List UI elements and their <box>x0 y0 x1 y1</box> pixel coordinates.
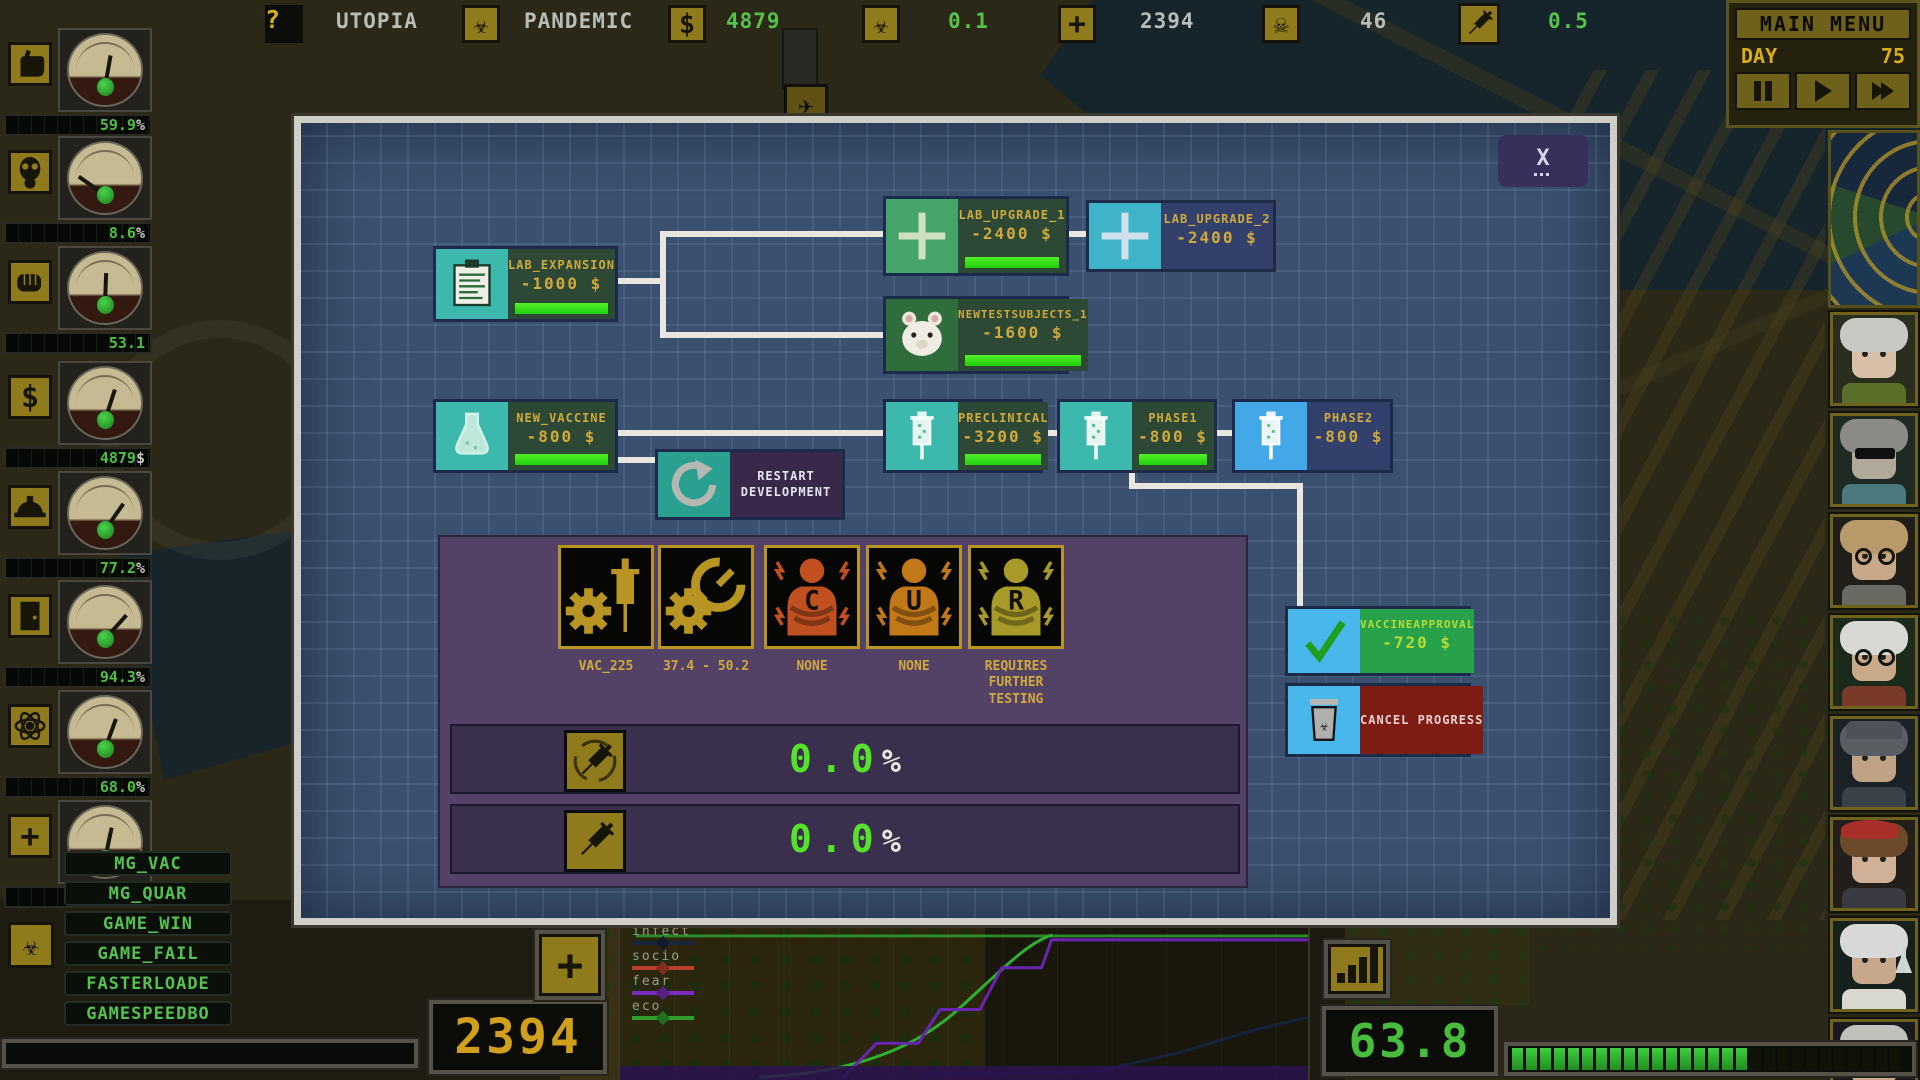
syringe-icon <box>886 402 958 470</box>
research-node-phase2[interactable]: PHASE2-800 $ <box>1232 399 1393 473</box>
clipboard-icon <box>436 249 508 319</box>
patient-u-icon: U <box>866 545 962 649</box>
gauge-row-housing: 94.3% <box>4 580 154 686</box>
research-node-lab-upgrade-2[interactable]: LAB_UPGRADE_2-2400 $ <box>1086 200 1276 272</box>
advisor-portrait[interactable] <box>1830 817 1918 911</box>
syringe-icon <box>1060 402 1132 470</box>
gauge-row-industry: 77.2% <box>4 471 154 577</box>
dollar-icon: $ <box>668 5 706 43</box>
gauge-row-unrest: 59.9% <box>4 28 154 134</box>
bar-chart-icon <box>1328 944 1386 994</box>
gauge-value: 94.3% <box>4 666 152 688</box>
research-node-new-vaccine[interactable]: NEW_VACCINE-800 $ <box>433 399 618 473</box>
gas-mask-icon[interactable] <box>8 150 52 194</box>
biohazard-icon[interactable]: ☣ <box>8 922 54 968</box>
plus-icon <box>1089 203 1161 269</box>
close-button[interactable]: X <box>1498 135 1588 187</box>
cheat-item-gamespeedbo[interactable]: GAMESPEEDBO <box>64 1001 232 1026</box>
research-tree-dialog: X LAB_EXPANSION-1000 $ LAB_UPGRADE_1-240… <box>294 116 1617 925</box>
gauge-row-science: 68.0% <box>4 690 154 796</box>
cheat-menu: MG_VAC MG_QUAR GAME_WIN GAME_FAIL FASTER… <box>64 851 232 1026</box>
advisor-portrait[interactable] <box>1830 413 1918 507</box>
cancel-progress-button[interactable]: ☣ CANCEL PROGRESS <box>1285 683 1471 757</box>
advisor-portrait[interactable] <box>1830 918 1918 1012</box>
graph-legend: infect socio fear eco <box>632 924 694 1024</box>
scenario-label: UTOPIA <box>336 9 418 33</box>
gear-gauge-icon <box>658 545 754 649</box>
money-value: 4879 <box>726 9 781 33</box>
analog-gauge <box>58 246 152 330</box>
dollar-icon[interactable]: $ <box>8 375 52 419</box>
advisor-portraits <box>1830 312 1920 1080</box>
syringe-cycle-icon <box>564 730 626 792</box>
side-effect-c: NONE <box>760 659 864 675</box>
cheat-item-mg-vac[interactable]: MG_VAC <box>64 851 232 876</box>
day-label: DAY <box>1741 44 1777 68</box>
play-icon <box>1815 80 1832 102</box>
cheat-item-game-win[interactable]: GAME_WIN <box>64 911 232 936</box>
help-icon[interactable]: ? <box>265 5 303 43</box>
score-display: 63.8 <box>1320 1004 1500 1078</box>
analog-gauge <box>58 471 152 555</box>
svg-text:☣: ☣ <box>1319 717 1328 735</box>
day-value: 75 <box>1881 44 1905 68</box>
gauge-value: 77.2% <box>4 557 152 579</box>
research-node-newtestsubjects-1[interactable]: NEWTESTSUBJECTS_1-1600 $ <box>883 296 1069 374</box>
advisor-portrait[interactable] <box>1830 514 1918 608</box>
skull-icon: ☠ <box>1262 5 1300 43</box>
cheat-item-mg-quar[interactable]: MG_QUAR <box>64 881 232 906</box>
svg-text:U: U <box>906 586 922 616</box>
svg-text:C: C <box>804 586 820 616</box>
cheat-item-game-fail[interactable]: GAME_FAIL <box>64 941 232 966</box>
research-progress-bar <box>515 303 608 314</box>
gauge-row-crime: 53.1 <box>4 246 154 352</box>
deaths-value: 46 <box>1360 9 1387 33</box>
syringe-icon <box>1458 3 1500 45</box>
immunity-progress-row: 0.0% <box>450 804 1240 874</box>
close-icon: X <box>1536 146 1549 171</box>
empty-progress-bar <box>0 1037 420 1070</box>
main-menu-button[interactable]: MAIN MENU <box>1735 8 1911 40</box>
atom-icon[interactable] <box>8 704 52 748</box>
statistics-button[interactable] <box>1322 938 1392 1000</box>
control-tower <box>782 28 818 90</box>
patient-c-icon: C <box>764 545 860 649</box>
cheat-item-fasterloade[interactable]: FASTERLOADE <box>64 971 232 996</box>
gauge-value: 4879$ <box>4 447 152 469</box>
minimap-disc <box>1828 130 1920 308</box>
restart-icon <box>658 452 730 517</box>
trash-icon: ☣ <box>1288 686 1360 754</box>
vaccine-range: 37.4 - 50.2 <box>654 659 758 675</box>
pause-icon <box>1765 81 1772 101</box>
biohazard-icon: ☣ <box>862 5 900 43</box>
vaccine-detail-panel: C U R VAC_225 37.4 - 50.2 NONE NONE REQU… <box>438 535 1248 888</box>
analog-gauge <box>58 690 152 774</box>
fist-icon[interactable] <box>8 42 52 86</box>
advisor-portrait[interactable] <box>1830 716 1918 810</box>
medical-cross-icon: + <box>539 934 601 996</box>
game-screen: ✈ ? UTOPIA ☣ PANDEMIC $ 4879 ☣ 0.1 + 239… <box>0 0 1920 1080</box>
gauge-value: 59.9% <box>4 114 152 136</box>
restart-development-button[interactable]: RESTART DEVELOPMENT <box>655 449 845 520</box>
gear-syringe-icon <box>558 545 654 649</box>
research-node-lab-expansion[interactable]: LAB_EXPANSION-1000 $ <box>433 246 618 322</box>
syringe-icon <box>564 810 626 872</box>
research-node-lab-upgrade-1[interactable]: LAB_UPGRADE_1-2400 $ <box>883 196 1069 276</box>
minimap-dial[interactable] <box>1828 130 1920 308</box>
gauge-value: 53.1 <box>4 332 152 354</box>
time-control-panel: MAIN MENU DAY 75 <box>1726 0 1920 128</box>
gauge-row-money: $ 4879$ <box>4 361 154 467</box>
check-icon <box>1288 609 1360 673</box>
gauge-value: 8.6% <box>4 222 152 244</box>
infection-rate-value: 0.1 <box>948 9 989 33</box>
advisor-portrait[interactable] <box>1830 615 1918 709</box>
patient-r-icon: R <box>968 545 1064 649</box>
fast-forward-icon <box>1881 82 1894 100</box>
hardhat-icon[interactable] <box>8 485 52 529</box>
play-button[interactable] <box>1795 72 1851 110</box>
analog-gauge <box>58 136 152 220</box>
research-progress-bar <box>1139 454 1207 465</box>
hamster-icon <box>886 299 958 371</box>
vaccine-name: VAC_225 <box>554 659 658 675</box>
plus-icon <box>886 199 958 273</box>
svg-text:R: R <box>1008 586 1024 616</box>
vaccination-progress-frame <box>1502 1040 1918 1078</box>
medical-cross-icon: + <box>1058 5 1096 43</box>
analog-gauge <box>58 28 152 112</box>
research-node-phase1[interactable]: PHASE1-800 $ <box>1057 399 1217 473</box>
gauge-value: 68.0% <box>4 776 152 798</box>
graph-axis-band <box>620 1066 1308 1080</box>
health-overlay-button[interactable]: + <box>533 928 607 1002</box>
research-progress-bar <box>965 355 1081 366</box>
medical-cross-icon[interactable]: + <box>8 814 52 858</box>
research-progress-bar <box>965 454 1041 465</box>
research-node-vaccineapproval[interactable]: VACCINEAPPROVAL-720 $ <box>1285 606 1471 676</box>
flask-icon <box>436 402 508 470</box>
pause-button[interactable] <box>1735 72 1791 110</box>
gauge-row-infection: 8.6% <box>4 136 154 242</box>
advisor-portrait[interactable] <box>1830 312 1918 406</box>
testing-status: REQUIRES FURTHER TESTING <box>964 659 1068 708</box>
punch-icon[interactable] <box>8 260 52 304</box>
pause-icon <box>1754 81 1761 101</box>
research-progress-bar <box>965 257 1059 268</box>
door-icon[interactable] <box>8 594 52 638</box>
vaccination-progress-row: 0.0% <box>450 724 1240 794</box>
research-progress-bar <box>515 454 608 465</box>
vaccination-rate-value: 0.5 <box>1548 9 1589 33</box>
research-node-preclinical[interactable]: PRECLINICAL-3200 $ <box>883 399 1043 473</box>
mode-label: PANDEMIC <box>524 9 633 33</box>
biohazard-icon: ☣ <box>462 5 500 43</box>
side-effect-u: NONE <box>862 659 966 675</box>
population-display: 2394 <box>427 998 609 1076</box>
fast-forward-button[interactable] <box>1855 72 1911 110</box>
syringe-icon <box>1235 402 1307 470</box>
analog-gauge <box>58 580 152 664</box>
statistics-graph: infect socio fear eco <box>618 926 1310 1080</box>
vaccination-segment-bar <box>1508 1046 1912 1072</box>
population-value: 2394 <box>1140 9 1195 33</box>
analog-gauge <box>58 361 152 445</box>
